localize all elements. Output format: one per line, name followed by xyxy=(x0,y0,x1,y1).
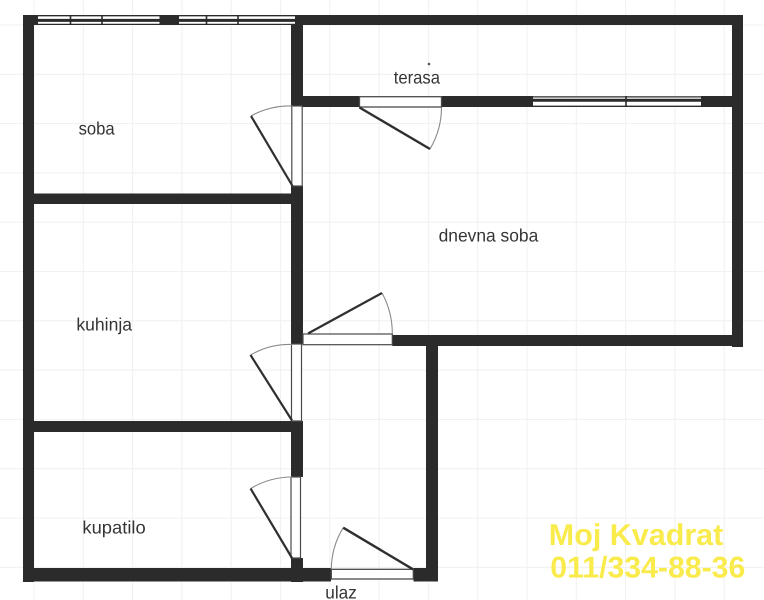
svg-text:terasa: terasa xyxy=(394,67,441,87)
svg-text:soba: soba xyxy=(79,119,116,139)
svg-text:kupatilo: kupatilo xyxy=(82,518,145,538)
svg-text:ulaz: ulaz xyxy=(325,582,357,600)
svg-text:Moj Kvadrat: Moj Kvadrat xyxy=(549,519,724,552)
svg-text:kuhinja: kuhinja xyxy=(76,315,133,335)
svg-text:011/334-88-36: 011/334-88-36 xyxy=(550,552,745,585)
svg-text:dnevna soba: dnevna soba xyxy=(439,226,540,246)
